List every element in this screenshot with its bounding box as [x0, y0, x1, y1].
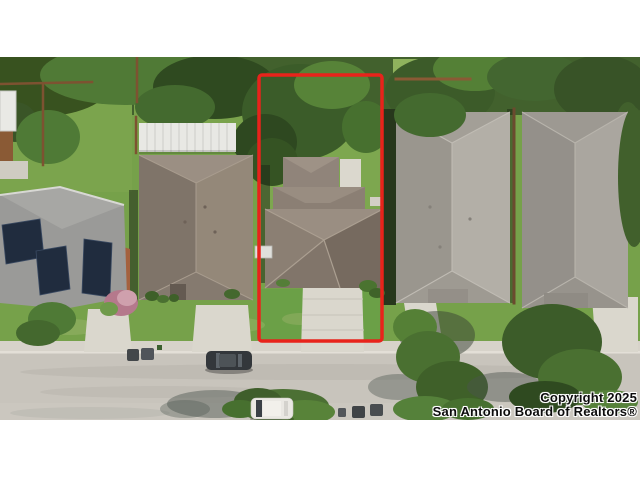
house-second-left [139, 123, 253, 300]
trash-bin [338, 408, 346, 417]
watermark-line1: Copyright 2025 [433, 391, 637, 405]
backyard-shed [0, 91, 16, 131]
house-far-right [522, 107, 640, 308]
trash-bin [141, 348, 154, 360]
trash-bin [370, 404, 383, 416]
letterbox-top [0, 0, 640, 57]
trash-bin [352, 406, 365, 418]
screenshot-frame: Copyright 2025 San Antonio Board of Real… [0, 0, 640, 480]
trash-bin [127, 349, 139, 361]
house-right-of-subject [394, 93, 510, 303]
watermark: Copyright 2025 San Antonio Board of Real… [433, 391, 637, 418]
watermark-line2: San Antonio Board of Realtors® [433, 405, 637, 419]
white-shed [139, 123, 236, 154]
letterbox-bottom [0, 420, 640, 480]
aerial-scene [0, 57, 640, 420]
aerial-photo: Copyright 2025 San Antonio Board of Real… [0, 57, 640, 420]
ac-unit [370, 197, 381, 206]
patio [0, 161, 28, 179]
rear-patio [340, 159, 361, 189]
